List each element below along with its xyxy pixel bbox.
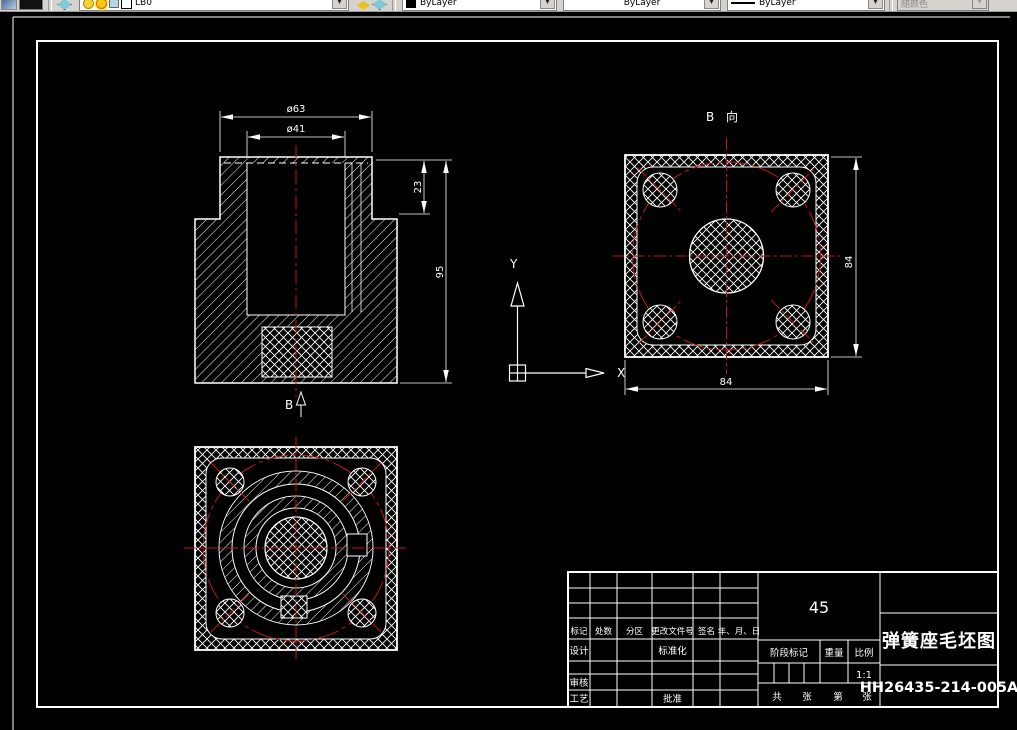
b-direction-view: B 向 84 84 (612, 109, 862, 395)
toolbar-separator (889, 0, 893, 11)
linetype-value: ByLayer (624, 0, 661, 8)
svg-text:工艺: 工艺 (569, 694, 588, 705)
svg-text:95: 95 (435, 266, 446, 279)
view-direction-arrow: B (285, 392, 306, 417)
layer-on-bulb-icon[interactable] (83, 0, 94, 9)
layer-name: LB0 (135, 0, 152, 8)
linetype-combo[interactable]: ByLayer ▾ (563, 0, 721, 11)
svg-text:处数: 处数 (595, 626, 613, 637)
keyway-tab (347, 534, 367, 556)
svg-text:标准化: 标准化 (658, 645, 687, 657)
title-block: 标记 处数 分区 更改文件号 签名 年、月、日 设计 标准化 审核 工艺 批准 … (568, 572, 1017, 707)
drawing-canvas[interactable]: ø63 ø41 23 95 B B 向 (0, 12, 1017, 730)
toolbar-button-icon[interactable] (1, 0, 17, 10)
svg-text:张: 张 (802, 692, 812, 703)
svg-text:第: 第 (833, 691, 843, 703)
layer-manager-icon[interactable] (57, 0, 72, 10)
ucs-icon: Y X (509, 257, 625, 381)
dimension-total-height: 95 (400, 161, 452, 383)
b-view-label: B 向 (706, 109, 742, 124)
bottom-view (184, 437, 409, 661)
keyway-tab (281, 596, 307, 618)
make-layer-current-icon[interactable] (357, 1, 370, 10)
dimension-boss-height: 23 (376, 160, 452, 214)
lineweight-combo[interactable]: ByLayer ▾ (727, 0, 885, 11)
plotstyle-combo: 随颜色 ▾ (897, 0, 989, 11)
plotstyle-value: 随颜色 (901, 0, 928, 10)
chevron-down-icon: ▾ (972, 0, 987, 9)
svg-text:84: 84 (720, 377, 733, 388)
svg-text:阶段标记: 阶段标记 (770, 647, 809, 659)
display-icon[interactable] (19, 0, 43, 10)
svg-text:审核: 审核 (569, 677, 589, 689)
svg-text:重量: 重量 (824, 647, 844, 659)
drawing-title: 弹簧座毛坯图 (882, 630, 996, 652)
svg-text:23: 23 (413, 181, 424, 194)
lineweight-value: ByLayer (759, 0, 796, 8)
svg-text:签名: 签名 (698, 626, 715, 637)
svg-text:标记: 标记 (570, 626, 588, 637)
dimension-height: 84 (831, 157, 862, 357)
toolbar-separator (392, 0, 396, 11)
chevron-down-icon[interactable]: ▾ (332, 0, 347, 9)
svg-text:84: 84 (844, 256, 855, 269)
svg-text:更改文件号: 更改文件号 (651, 626, 694, 637)
drawing-number: HH26435-214-005A (860, 680, 1017, 696)
svg-text:ø41: ø41 (287, 124, 306, 135)
svg-text:共: 共 (772, 692, 782, 703)
chevron-down-icon[interactable]: ▾ (704, 0, 719, 9)
section-view: ø63 ø41 23 95 B (195, 104, 452, 417)
color-combo[interactable]: ByLayer ▾ (402, 0, 557, 11)
ucs-y-label: Y (509, 257, 518, 271)
layer-freeze-sun-icon[interactable] (96, 0, 107, 9)
ucs-x-label: X (617, 366, 625, 380)
svg-text:批准: 批准 (663, 693, 683, 705)
layer-previous-icon[interactable] (372, 0, 387, 10)
layer-combo[interactable]: LB0 ▾ (79, 0, 349, 11)
chevron-down-icon[interactable]: ▾ (540, 0, 555, 9)
layer-color-chip-icon (121, 0, 132, 9)
core-block (262, 327, 332, 377)
lineweight-sample-icon (731, 2, 755, 4)
svg-text:B: B (285, 398, 293, 412)
svg-text:ø63: ø63 (287, 104, 306, 115)
toolbar-separator (48, 0, 52, 11)
layer-lock-icon[interactable] (109, 0, 119, 8)
svg-text:设计: 设计 (569, 645, 589, 657)
color-value: ByLayer (420, 0, 457, 8)
svg-text:比例: 比例 (854, 647, 873, 659)
color-swatch-icon (406, 0, 416, 8)
toolbar: LB0 ▾ ByLayer ▾ ByLayer ▾ ByLayer ▾ 随颜色 … (0, 0, 1017, 12)
chevron-down-icon[interactable]: ▾ (868, 0, 883, 9)
svg-text:年、月、日: 年、月、日 (718, 626, 761, 637)
svg-text:分区: 分区 (626, 627, 644, 637)
material: 45 (809, 598, 829, 617)
